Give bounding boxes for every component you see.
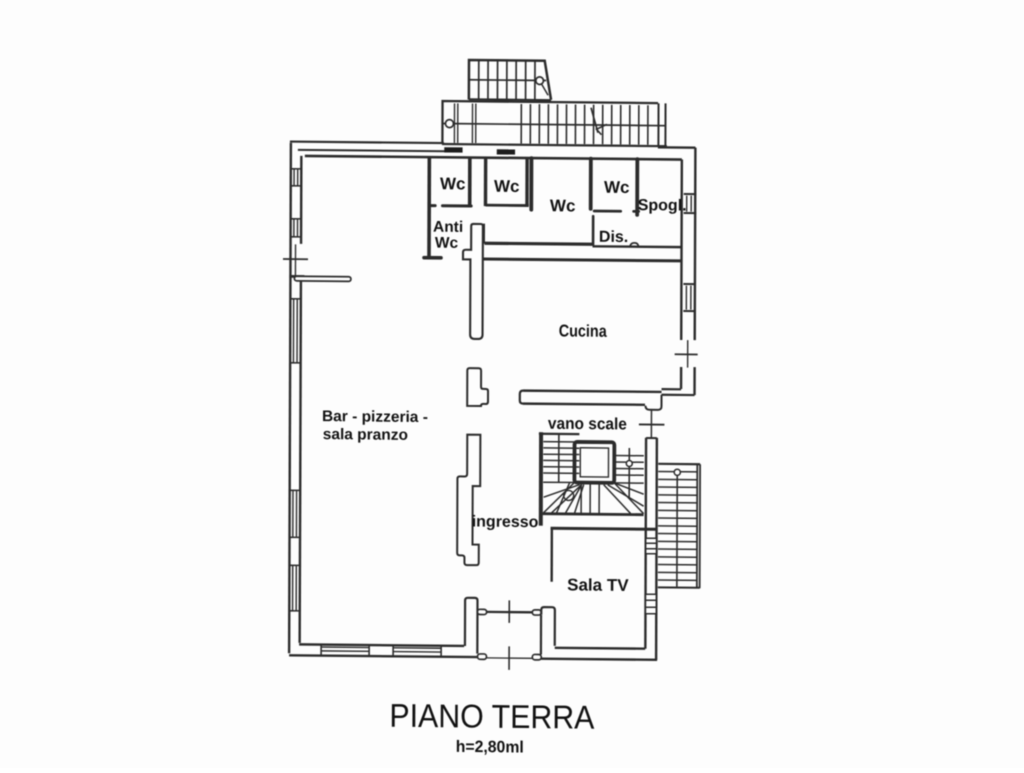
svg-text:Bar - pizzeria -: Bar - pizzeria - <box>322 408 428 426</box>
svg-text:vano scale: vano scale <box>548 415 627 434</box>
svg-text:Sala TV: Sala TV <box>567 575 629 595</box>
svg-text:sala pranzo: sala pranzo <box>323 426 408 444</box>
svg-text:h=2,80ml: h=2,80ml <box>456 738 524 757</box>
svg-text:Dis.: Dis. <box>599 229 628 246</box>
svg-text:ingresso: ingresso <box>472 514 539 532</box>
svg-text:Spogl.: Spogl. <box>638 197 687 214</box>
svg-text:Wc: Wc <box>604 178 630 197</box>
svg-text:Wc: Wc <box>440 174 466 193</box>
svg-text:Wc: Wc <box>494 177 520 196</box>
svg-text:PIANO TERRA: PIANO TERRA <box>389 697 594 736</box>
svg-text:Wc: Wc <box>550 196 576 215</box>
svg-text:Anti: Anti <box>433 219 463 236</box>
svg-text:Wc: Wc <box>435 235 459 252</box>
svg-text:Cucina: Cucina <box>559 321 608 340</box>
